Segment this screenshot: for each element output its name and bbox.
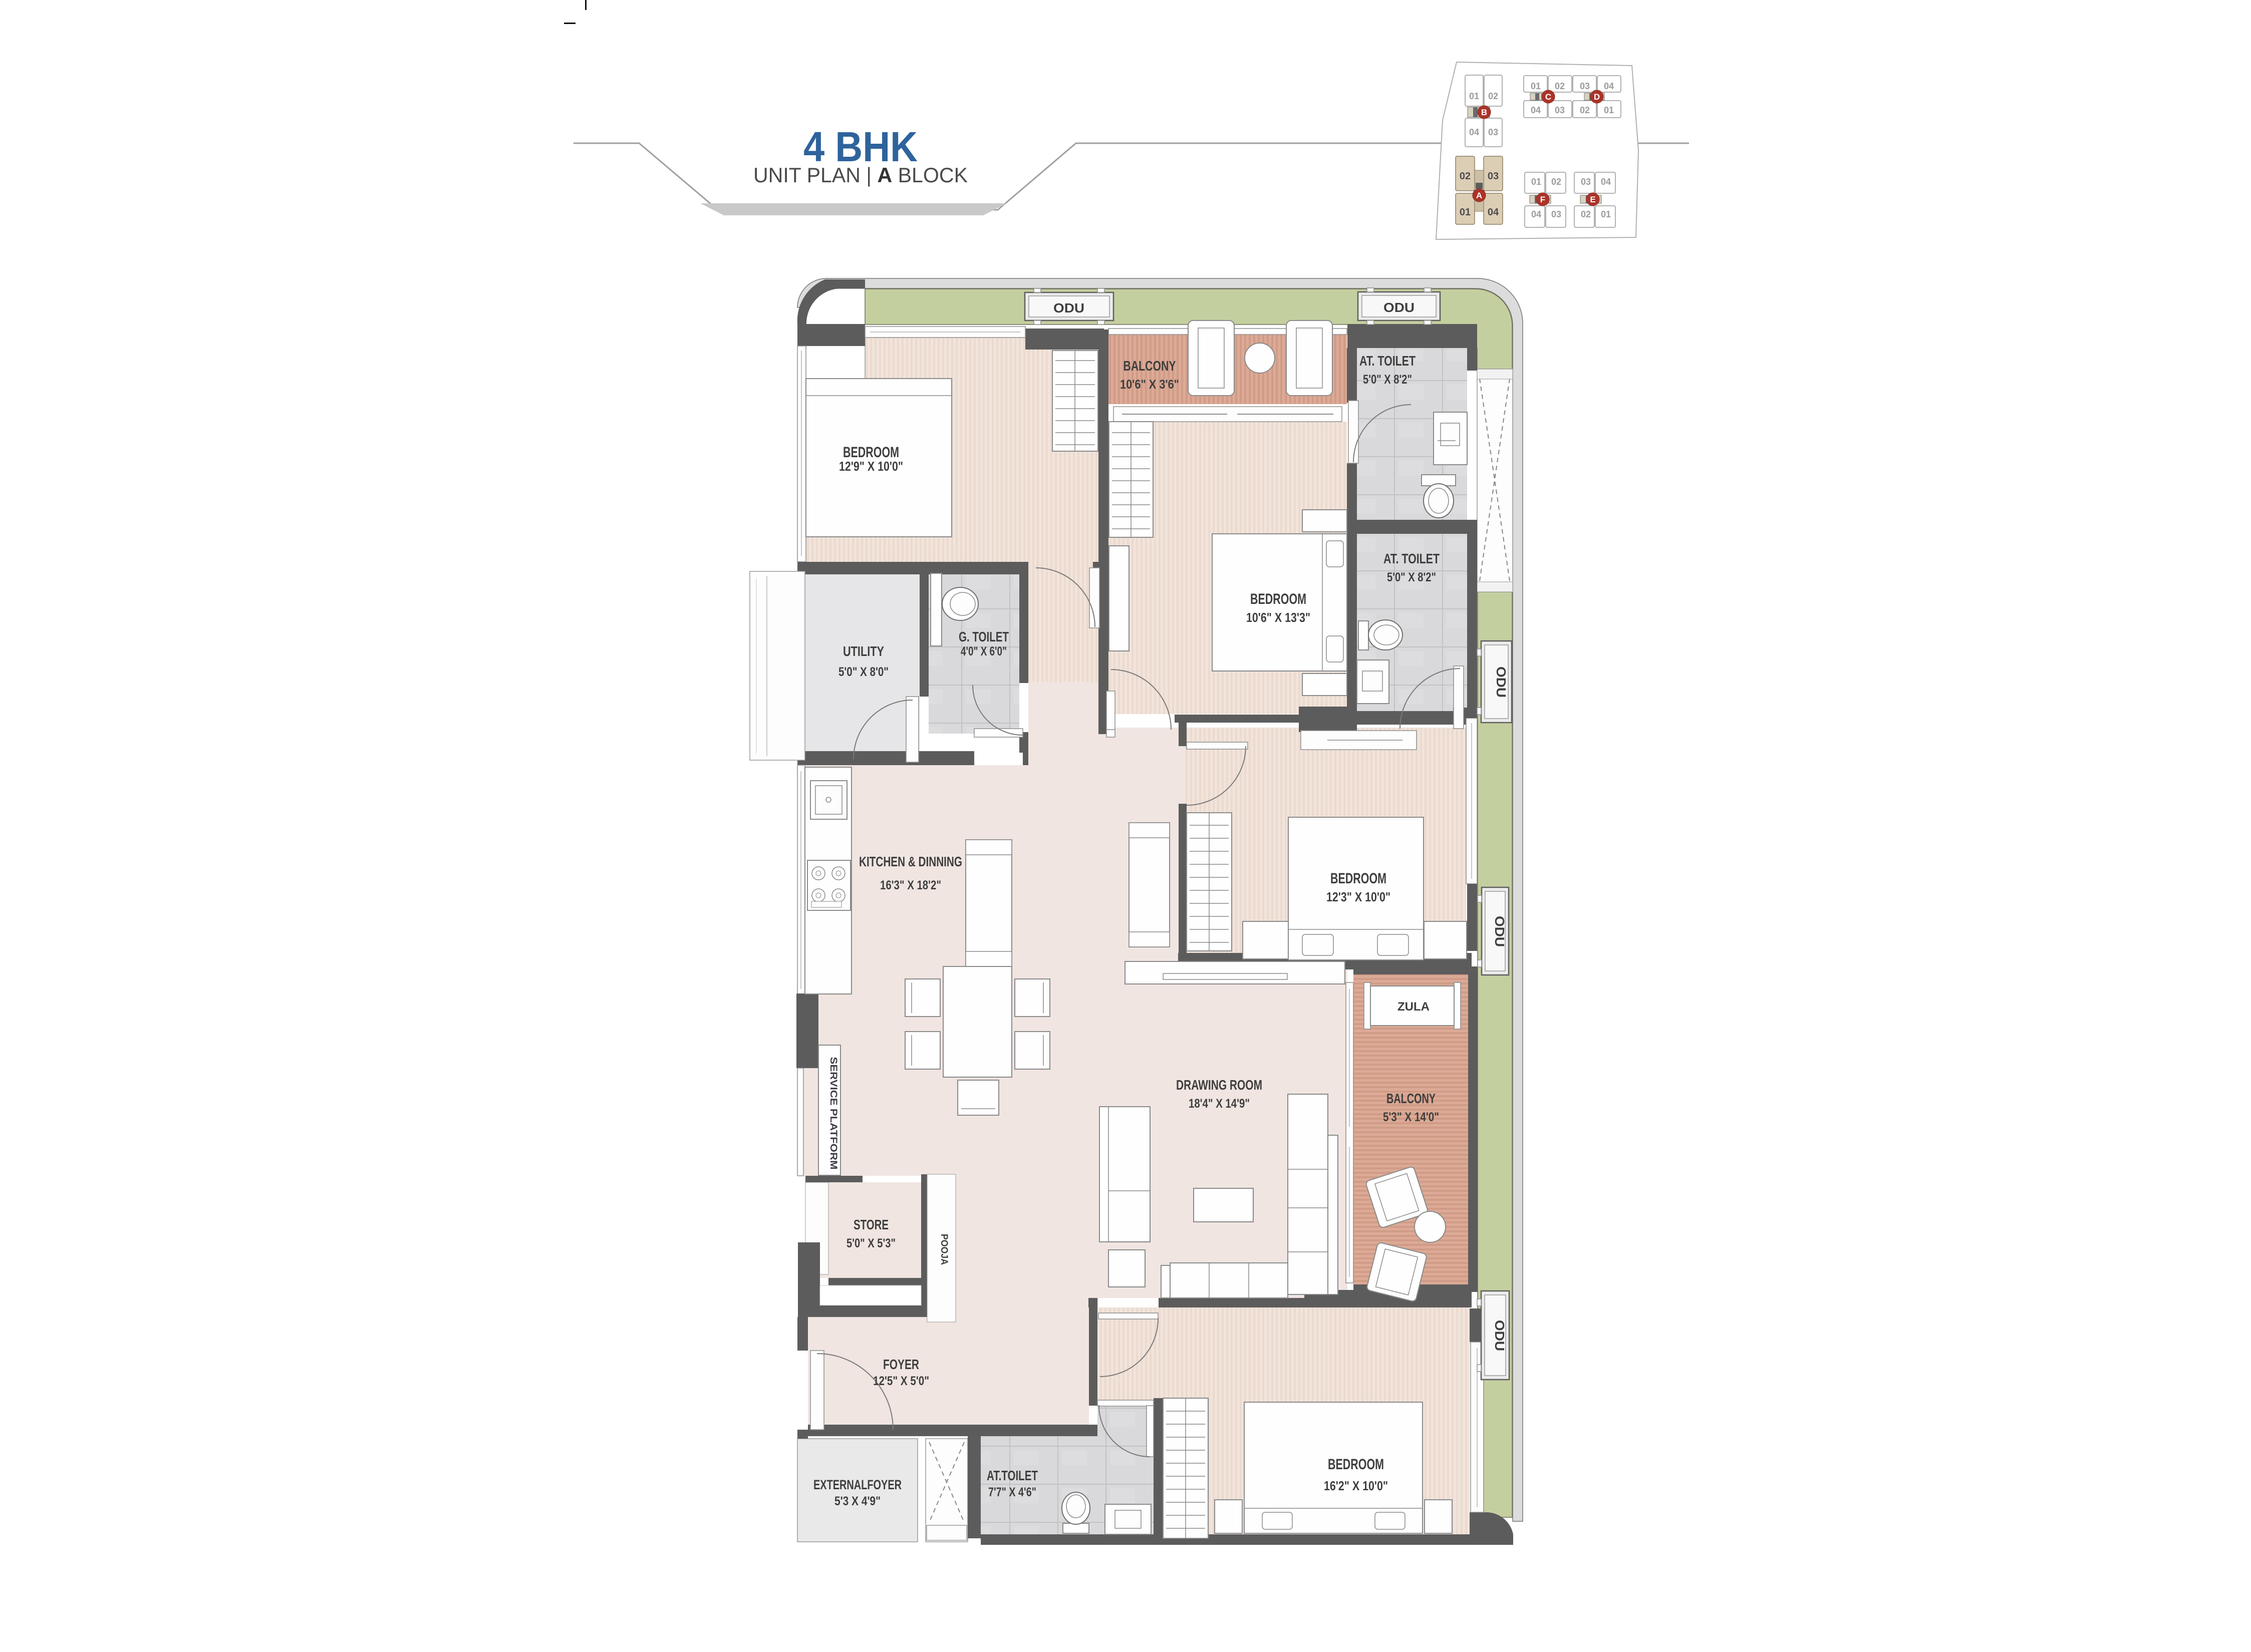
svg-text:5'3 X 4'9": 5'3 X 4'9" [834,1494,881,1508]
svg-text:BEDROOM: BEDROOM [1330,870,1386,887]
svg-text:BALCONY: BALCONY [1386,1091,1436,1106]
svg-text:A: A [1476,191,1482,200]
svg-text:ODU: ODU [1492,1320,1507,1351]
svg-text:ODU: ODU [1492,916,1507,947]
svg-text:01: 01 [1469,91,1479,101]
svg-text:02: 02 [1580,105,1590,115]
svg-text:D: D [1594,92,1600,102]
svg-text:5'0" X 8'0": 5'0" X 8'0" [838,665,889,679]
svg-text:4'0" X 6'0": 4'0" X 6'0" [961,644,1007,658]
svg-text:02: 02 [1460,171,1471,182]
svg-text:10'6" X 13'3": 10'6" X 13'3" [1246,610,1310,625]
svg-text:5'0" X 8'2": 5'0" X 8'2" [1387,570,1436,584]
svg-text:02: 02 [1581,209,1591,219]
svg-text:BEDROOM: BEDROOM [1250,591,1306,607]
svg-text:STORE: STORE [854,1217,889,1232]
svg-text:DRAWING ROOM: DRAWING ROOM [1176,1077,1262,1093]
svg-text:12'9" X 10'0": 12'9" X 10'0" [839,459,903,474]
svg-text:ODU: ODU [1494,667,1509,698]
svg-text:5'0" X 8'2": 5'0" X 8'2" [1363,373,1412,387]
svg-text:F: F [1540,195,1545,204]
svg-text:04: 04 [1531,209,1541,219]
svg-text:FOYER: FOYER [883,1357,919,1372]
svg-text:04: 04 [1604,81,1614,91]
svg-text:03: 03 [1581,177,1591,187]
svg-text:AT. TOILET: AT. TOILET [1359,353,1416,369]
svg-text:16'3" X 18'2": 16'3" X 18'2" [880,878,941,892]
svg-text:7'7" X 4'6": 7'7" X 4'6" [988,1485,1036,1499]
svg-text:03: 03 [1488,171,1499,182]
svg-text:KITCHEN & DINNING: KITCHEN & DINNING [859,854,962,869]
svg-text:01: 01 [1531,177,1541,187]
svg-text:02: 02 [1555,81,1565,91]
svg-text:C: C [1545,92,1551,102]
svg-text:SERVICE PLATFORM: SERVICE PLATFORM [828,1057,838,1170]
svg-text:UTILITY: UTILITY [843,643,884,659]
svg-text:AT.TOILET: AT.TOILET [987,1468,1038,1483]
svg-text:01: 01 [1460,207,1471,218]
svg-text:04: 04 [1531,105,1541,115]
svg-text:04: 04 [1601,177,1611,187]
svg-text:03: 03 [1580,81,1590,91]
svg-text:18'4" X 14'9": 18'4" X 14'9" [1189,1097,1250,1111]
svg-text:04: 04 [1488,207,1499,218]
svg-text:12'3" X 10'0": 12'3" X 10'0" [1326,889,1390,904]
svg-text:ZULA: ZULA [1397,1000,1430,1014]
svg-text:16'2" X 10'0": 16'2" X 10'0" [1324,1478,1388,1493]
svg-text:UNIT PLAN | A BLOCK: UNIT PLAN | A BLOCK [753,163,968,187]
svg-text:5'0" X 5'3": 5'0" X 5'3" [847,1236,896,1250]
svg-text:5'3" X 14'0": 5'3" X 14'0" [1383,1110,1439,1124]
svg-text:B: B [1481,108,1487,117]
svg-text:G. TOILET: G. TOILET [959,629,1009,644]
svg-text:03: 03 [1488,127,1498,137]
svg-text:BEDROOM: BEDROOM [1328,1456,1384,1473]
svg-text:AT. TOILET: AT. TOILET [1383,551,1440,566]
svg-text:ODU: ODU [1053,300,1084,315]
svg-text:BALCONY: BALCONY [1123,358,1176,374]
svg-text:04: 04 [1469,127,1479,137]
svg-text:ODU: ODU [1383,300,1415,315]
svg-text:10'6" X 3'6": 10'6" X 3'6" [1120,378,1179,392]
svg-text:03: 03 [1555,105,1565,115]
svg-text:EXTERNALFOYER: EXTERNALFOYER [813,1477,902,1492]
svg-text:E: E [1590,195,1595,204]
svg-text:POOJA: POOJA [939,1234,949,1265]
svg-text:02: 02 [1488,91,1498,101]
svg-text:01: 01 [1531,81,1541,91]
svg-text:03: 03 [1551,209,1561,219]
svg-text:01: 01 [1604,105,1614,115]
svg-text:02: 02 [1551,177,1561,187]
svg-text:12'5" X 5'0": 12'5" X 5'0" [873,1374,929,1388]
svg-text:01: 01 [1601,209,1611,219]
